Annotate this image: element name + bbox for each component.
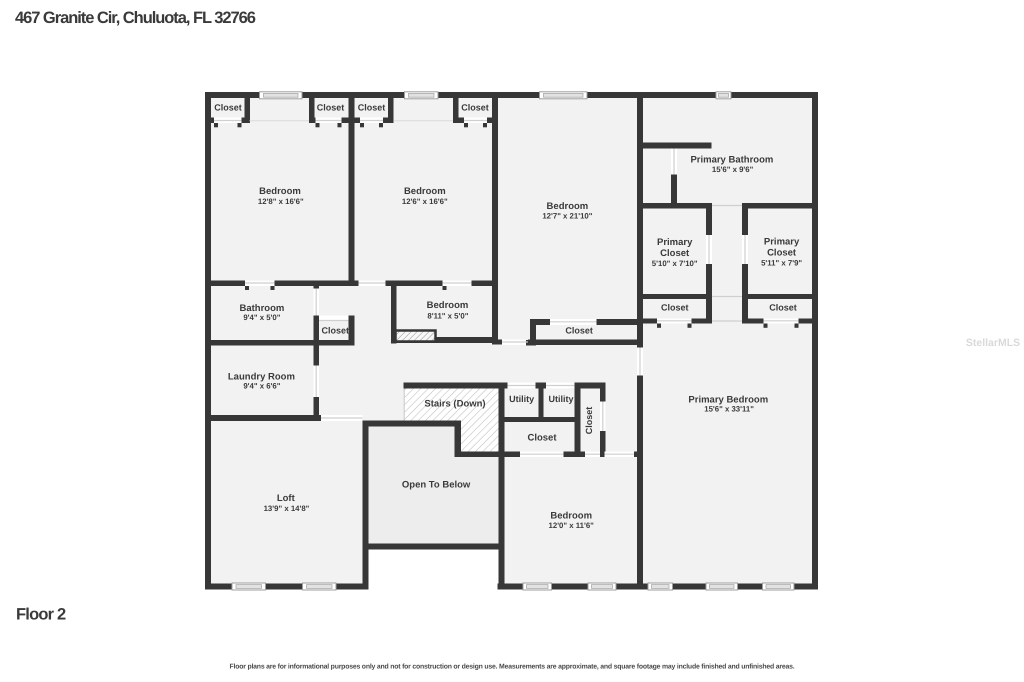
svg-text:Closet: Closet <box>214 102 242 112</box>
svg-text:Closet: Closet <box>584 407 594 435</box>
svg-text:12'0" x 11'6": 12'0" x 11'6" <box>549 521 595 530</box>
svg-text:Closet: Closet <box>317 102 345 112</box>
svg-text:Closet: Closet <box>769 302 797 312</box>
svg-text:12'7" x 21'10": 12'7" x 21'10" <box>542 212 592 221</box>
svg-text:Closet: Closet <box>527 432 557 443</box>
svg-text:12'8" x 16'6": 12'8" x 16'6" <box>258 197 304 206</box>
svg-text:13'9" x 14'8": 13'9" x 14'8" <box>264 504 310 513</box>
svg-text:5'10" x 7'10": 5'10" x 7'10" <box>652 259 698 268</box>
svg-text:Utility: Utility <box>548 394 573 404</box>
svg-text:Bedroom: Bedroom <box>547 201 589 212</box>
svg-text:9'4" x 5'0": 9'4" x 5'0" <box>243 313 280 322</box>
svg-text:Floor 2: Floor 2 <box>16 606 66 624</box>
svg-text:15'6" x 33'11": 15'6" x 33'11" <box>704 404 754 413</box>
svg-text:Closet: Closet <box>565 325 593 335</box>
svg-text:Bedroom: Bedroom <box>427 300 469 311</box>
svg-text:15'6" x 9'6": 15'6" x 9'6" <box>712 165 754 174</box>
svg-text:Closet: Closet <box>660 248 690 259</box>
svg-text:Closet: Closet <box>767 248 797 259</box>
svg-text:Closet: Closet <box>461 102 489 112</box>
svg-text:Primary Bathroom: Primary Bathroom <box>690 154 773 165</box>
svg-text:5'11" x 7'9": 5'11" x 7'9" <box>761 258 802 267</box>
svg-text:Loft: Loft <box>277 493 296 504</box>
svg-text:Primary: Primary <box>657 237 693 248</box>
svg-text:12'6" x 16'6": 12'6" x 16'6" <box>402 197 448 206</box>
svg-text:Closet: Closet <box>661 302 689 312</box>
svg-text:Closet: Closet <box>322 325 350 335</box>
svg-text:Open To Below: Open To Below <box>402 480 471 491</box>
svg-text:8'11" x 5'0": 8'11" x 5'0" <box>427 311 468 320</box>
svg-text:9'4" x 6'6": 9'4" x 6'6" <box>243 381 280 390</box>
svg-text:Stairs (Down): Stairs (Down) <box>424 398 485 409</box>
svg-text:Bedroom: Bedroom <box>404 186 446 197</box>
svg-text:Floor plans are for informatio: Floor plans are for informational purpos… <box>230 664 795 671</box>
svg-text:Closet: Closet <box>358 102 386 112</box>
svg-text:Utility: Utility <box>509 394 534 404</box>
svg-text:StellarMLS: StellarMLS <box>966 337 1020 349</box>
svg-text:Bedroom: Bedroom <box>259 186 301 197</box>
svg-text:467 Granite Cir, Chuluota, FL: 467 Granite Cir, Chuluota, FL 32766 <box>15 9 256 27</box>
svg-text:Primary: Primary <box>764 237 800 248</box>
